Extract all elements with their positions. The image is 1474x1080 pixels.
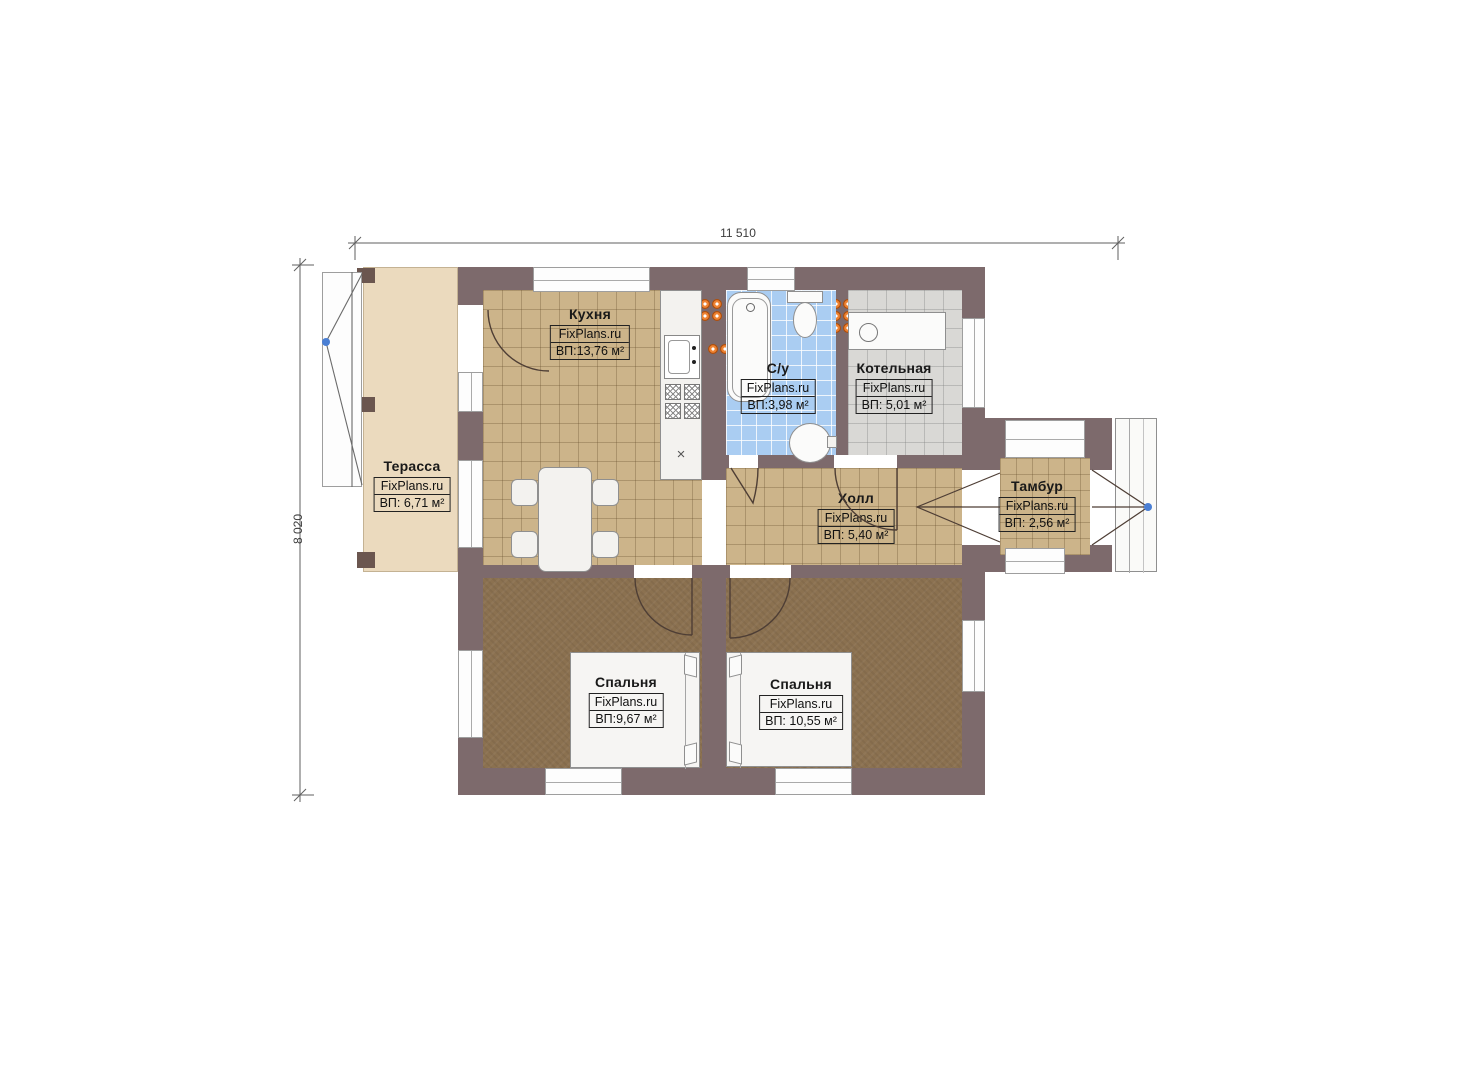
bedroom1-west-window <box>458 650 483 738</box>
room-label-hall: Холл FixPlans.ru ВП: 5,40 м² <box>818 490 895 544</box>
sink-faucet-dot <box>692 360 696 364</box>
chair-icon <box>511 531 538 558</box>
boiler-east-window <box>962 318 985 408</box>
bathroom-north-window <box>747 267 795 291</box>
room-name: Спальня <box>589 674 664 690</box>
room-label-bathroom: С/у FixPlans.ru ВП:3,98 м² <box>741 360 816 414</box>
dining-table <box>538 467 592 572</box>
room-label-bedroom2: Спальня FixPlans.ru ВП: 10,55 м² <box>759 676 843 730</box>
bedroom2-east-window <box>962 620 985 692</box>
watermark-label: FixPlans.ru <box>819 510 894 526</box>
room-name: Спальня <box>759 676 843 692</box>
watermark-label: FixPlans.ru <box>551 326 629 342</box>
boiler-counter <box>848 312 946 350</box>
counter-appliance-mark: × <box>661 429 701 479</box>
bedroom1-south-window <box>545 768 622 795</box>
stove-burner <box>665 403 681 419</box>
watermark-label: FixPlans.ru <box>760 696 842 712</box>
room-name: Тамбур <box>999 478 1076 494</box>
sink-faucet-dot <box>692 346 696 350</box>
bathtub-drain <box>746 303 755 312</box>
watermark-label: FixPlans.ru <box>857 380 932 396</box>
room-area-label: ВП: 5,40 м² <box>819 526 894 543</box>
bedroom2-south-window <box>775 768 852 795</box>
dimension-width-label: 11 510 <box>706 226 770 240</box>
room-area-label: ВП: 10,55 м² <box>760 712 842 729</box>
room-area-label: ВП: 5,01 м² <box>857 396 932 413</box>
sink-basin <box>668 340 690 374</box>
kitchen-sink-icon <box>664 335 700 379</box>
room-label-kitchen: Кухня FixPlans.ru ВП:13,76 м² <box>550 306 630 360</box>
room-label-boiler: Котельная FixPlans.ru ВП: 5,01 м² <box>856 360 933 414</box>
hall-vestibule-opening <box>962 470 1000 545</box>
room-label-terrace: Терасса FixPlans.ru ВП: 6,71 м² <box>374 458 451 512</box>
porch-step-line <box>1129 419 1130 573</box>
kitchen-terrace-window <box>458 460 483 548</box>
watermark-label: FixPlans.ru <box>1000 498 1075 514</box>
room-name: Терасса <box>374 458 451 474</box>
stove-burner <box>665 384 681 400</box>
watermark-label: FixPlans.ru <box>375 478 450 494</box>
room-name: Котельная <box>856 360 933 376</box>
kitchen-hall-passage <box>702 480 726 565</box>
room-area-label: ВП:9,67 м² <box>590 710 663 727</box>
chair-icon <box>592 531 619 558</box>
vestibule-south-window <box>1005 548 1065 574</box>
terrace-side-window <box>322 272 362 487</box>
kitchen-counter: × <box>660 290 702 480</box>
vestibule-north-window <box>1005 420 1085 458</box>
room-label-bedroom1: Спальня FixPlans.ru ВП:9,67 м² <box>589 674 664 728</box>
kitchen-door-opening <box>458 305 483 372</box>
room-label-vestibule: Тамбур FixPlans.ru ВП: 2,56 м² <box>999 478 1076 532</box>
bathroom-door-opening <box>729 455 758 468</box>
entrance-porch-steps <box>1115 418 1157 572</box>
room-area-label: ВП: 2,56 м² <box>1000 514 1075 531</box>
kitchen-west-window <box>458 372 483 412</box>
entrance-door-opening <box>1090 470 1112 545</box>
chair-icon <box>592 479 619 506</box>
bed-pillow <box>729 741 742 764</box>
room-area-label: ВП:3,98 м² <box>742 396 815 413</box>
bed-pillow <box>684 742 697 765</box>
watermark-label: FixPlans.ru <box>590 694 663 710</box>
dimension-height-label: 8 020 <box>291 497 305 561</box>
porch-step-line <box>1143 419 1144 573</box>
chair-icon <box>511 479 538 506</box>
bedroom1-door-opening <box>634 565 692 578</box>
radiator-icon <box>700 299 722 321</box>
terrace-deck <box>363 267 458 572</box>
kitchen-north-window <box>533 267 650 292</box>
room-area-label: ВП:13,76 м² <box>551 342 629 359</box>
room-name: Кухня <box>550 306 630 322</box>
floor-plan-canvas: 11 510 8 020 <box>0 0 1474 1080</box>
watermark-label: FixPlans.ru <box>742 380 815 396</box>
room-name: С/у <box>741 360 816 376</box>
bedroom2-door-opening <box>730 565 791 578</box>
boiler-door-opening <box>834 455 897 468</box>
stove-burner <box>684 384 700 400</box>
room-name: Холл <box>818 490 895 506</box>
terrace-post <box>357 552 375 568</box>
bed-pillow <box>684 654 697 677</box>
bed-pillow <box>729 654 742 677</box>
room-area-label: ВП: 6,71 м² <box>375 494 450 511</box>
stove-icon <box>663 381 701 421</box>
bathroom-sink-icon <box>789 423 831 463</box>
bathroom-sink-tap <box>827 436 837 448</box>
stove-burner <box>684 403 700 419</box>
boiler-unit-circle <box>859 323 878 342</box>
toilet-bowl <box>793 302 817 338</box>
